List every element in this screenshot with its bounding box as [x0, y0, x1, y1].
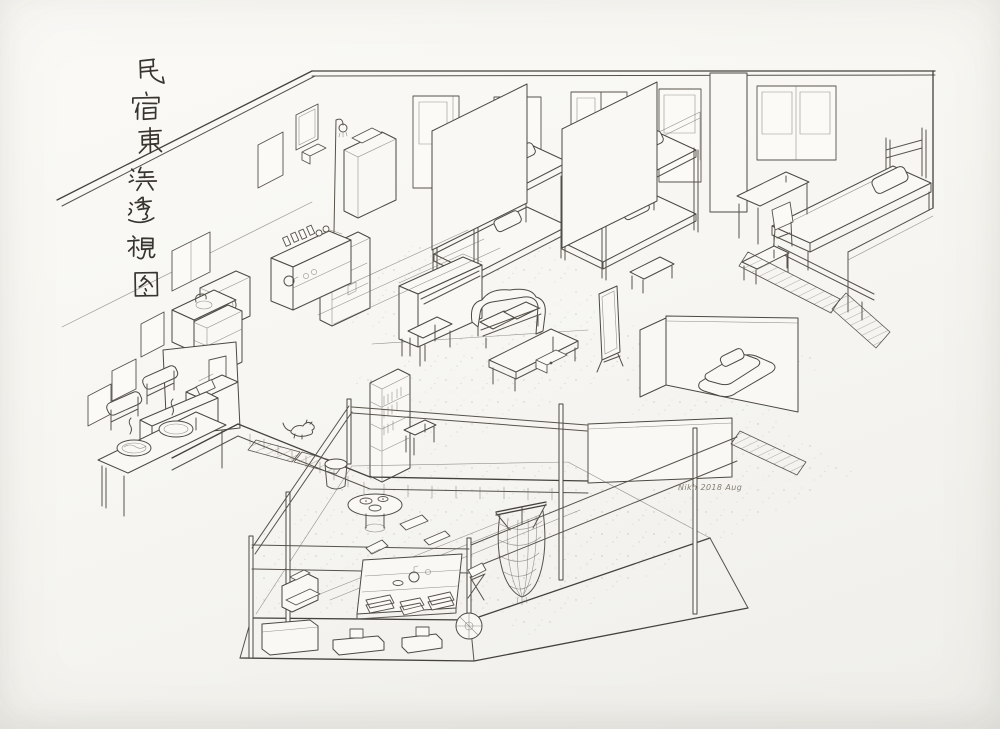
under-deck-storage — [262, 620, 442, 655]
wheel — [456, 613, 482, 639]
guesthouse-perspective-drawing: Nikh 2018 Aug — [0, 0, 1000, 729]
half-wall — [588, 418, 732, 483]
calligraphy-char-4 — [129, 167, 157, 191]
tall-cabinet — [344, 128, 396, 218]
small-bench — [630, 257, 674, 293]
calligraphy-char-3 — [139, 128, 161, 153]
calligraphy-char-2 — [133, 92, 159, 119]
artist-signature: Nikh 2018 Aug — [678, 483, 742, 492]
cat — [283, 420, 314, 439]
calligraphy-char-5 — [128, 197, 154, 223]
calligraphy-char-6 — [128, 236, 155, 259]
calligraphy-char-7 — [135, 273, 157, 296]
calligraphy-char-1 — [140, 59, 164, 84]
calligraphy-title — [128, 59, 164, 296]
window — [757, 86, 836, 160]
scanned-pencil-sketch: 民宿東浜透視图 — [0, 0, 1000, 729]
